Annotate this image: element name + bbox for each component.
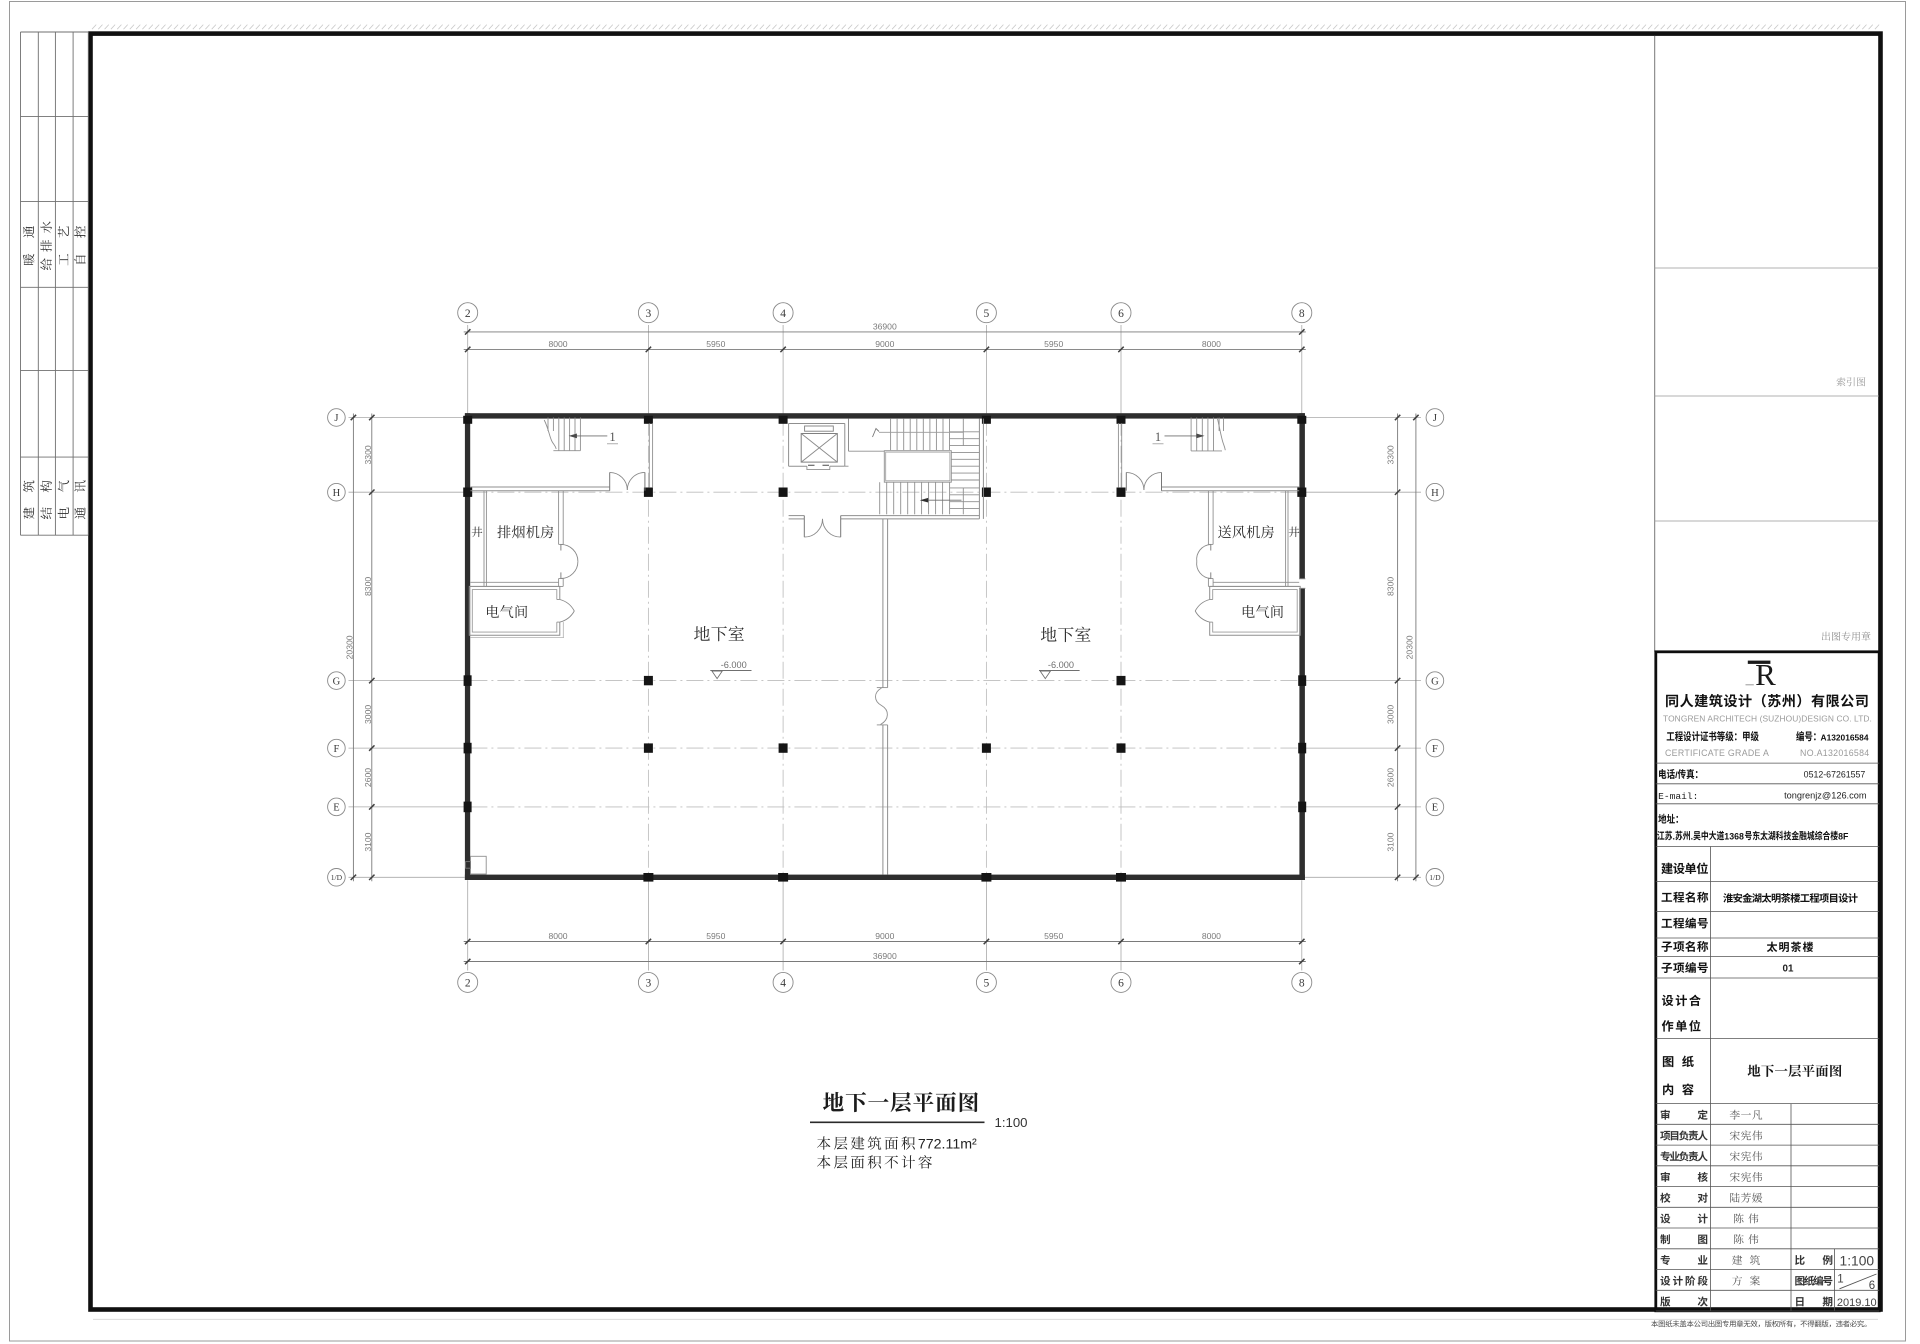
svg-text:2600: 2600 (363, 768, 373, 787)
svg-text:3100: 3100 (363, 832, 373, 851)
svg-text:772.11m²: 772.11m² (918, 1137, 977, 1153)
svg-text:3000: 3000 (363, 705, 373, 724)
svg-text:-6.000: -6.000 (721, 660, 747, 670)
svg-text:01: 01 (1783, 964, 1794, 975)
svg-text:2: 2 (465, 978, 471, 990)
svg-text:F: F (1432, 744, 1438, 755)
svg-text:E: E (333, 803, 339, 814)
svg-text:1368: 1368 (1724, 831, 1744, 841)
svg-text:4: 4 (780, 978, 786, 990)
svg-text:5950: 5950 (1044, 339, 1063, 349)
svg-text:0512-67261557: 0512-67261557 (1804, 769, 1866, 779)
svg-text:G: G (333, 676, 341, 687)
svg-text:3: 3 (646, 978, 652, 990)
svg-text:8000: 8000 (1202, 931, 1221, 941)
svg-text:8000: 8000 (548, 339, 567, 349)
svg-text:8000: 8000 (548, 931, 567, 941)
svg-text:A132016584: A132016584 (1821, 732, 1869, 742)
svg-text:20300: 20300 (1405, 635, 1415, 659)
svg-text:5: 5 (984, 978, 990, 990)
svg-text:G: G (1431, 676, 1439, 687)
svg-text:3300: 3300 (1386, 445, 1396, 464)
svg-text:5: 5 (984, 308, 990, 320)
svg-text:J: J (1433, 413, 1437, 424)
svg-text:1/D: 1/D (331, 873, 343, 882)
svg-text:2019.10: 2019.10 (1837, 1297, 1877, 1309)
svg-text:1: 1 (1155, 430, 1161, 444)
svg-text:5950: 5950 (1044, 931, 1063, 941)
svg-text:6: 6 (1869, 1280, 1875, 1292)
svg-text:4: 4 (780, 308, 786, 320)
svg-text:8300: 8300 (1386, 577, 1396, 596)
svg-text:-6.000: -6.000 (1048, 660, 1074, 670)
svg-text:2: 2 (465, 308, 471, 320)
svg-text:8: 8 (1299, 308, 1305, 320)
svg-text:6: 6 (1118, 308, 1124, 320)
svg-text:6: 6 (1118, 978, 1124, 990)
svg-text:1:100: 1:100 (1840, 1254, 1875, 1269)
svg-text:1: 1 (1837, 1274, 1843, 1286)
svg-text:3000: 3000 (1386, 705, 1396, 724)
svg-text:.: . (1673, 831, 1675, 841)
svg-text:F: F (333, 744, 339, 755)
svg-text:R: R (1755, 657, 1776, 692)
svg-text:H: H (333, 488, 341, 499)
svg-text:3100: 3100 (1386, 832, 1396, 851)
svg-text:36900: 36900 (873, 321, 897, 331)
svg-text:1: 1 (609, 430, 615, 444)
svg-text:2600: 2600 (1386, 768, 1396, 787)
svg-text:1:100: 1:100 (995, 1115, 1028, 1130)
svg-text:TONGREN ARCHITECH (SUZHOU)DESI: TONGREN ARCHITECH (SUZHOU)DESIGN CO. LTD… (1663, 714, 1872, 724)
svg-text:8000: 8000 (1202, 339, 1221, 349)
svg-text:8: 8 (1299, 978, 1305, 990)
svg-text:8300: 8300 (363, 577, 373, 596)
svg-text:3: 3 (646, 308, 652, 320)
svg-text:8F: 8F (1838, 831, 1849, 841)
svg-text:20300: 20300 (345, 635, 355, 659)
svg-text:E: E (1432, 803, 1438, 814)
svg-text:tongrenjz@126.com: tongrenjz@126.com (1784, 791, 1867, 801)
svg-text:9000: 9000 (875, 339, 894, 349)
svg-text:E-mail:: E-mail: (1658, 791, 1698, 802)
svg-text:5950: 5950 (706, 931, 725, 941)
svg-text:H: H (1431, 488, 1439, 499)
svg-text:3300: 3300 (363, 445, 373, 464)
svg-text:36900: 36900 (873, 951, 897, 961)
svg-text:.: . (1691, 831, 1693, 841)
svg-text:CERTIFICATE GRADE A: CERTIFICATE GRADE A (1665, 748, 1769, 758)
svg-text:J: J (334, 413, 338, 424)
svg-text:1/D: 1/D (1429, 873, 1441, 882)
svg-text:5950: 5950 (706, 339, 725, 349)
svg-text:NO.A132016584: NO.A132016584 (1800, 748, 1869, 758)
svg-text:9000: 9000 (875, 931, 894, 941)
